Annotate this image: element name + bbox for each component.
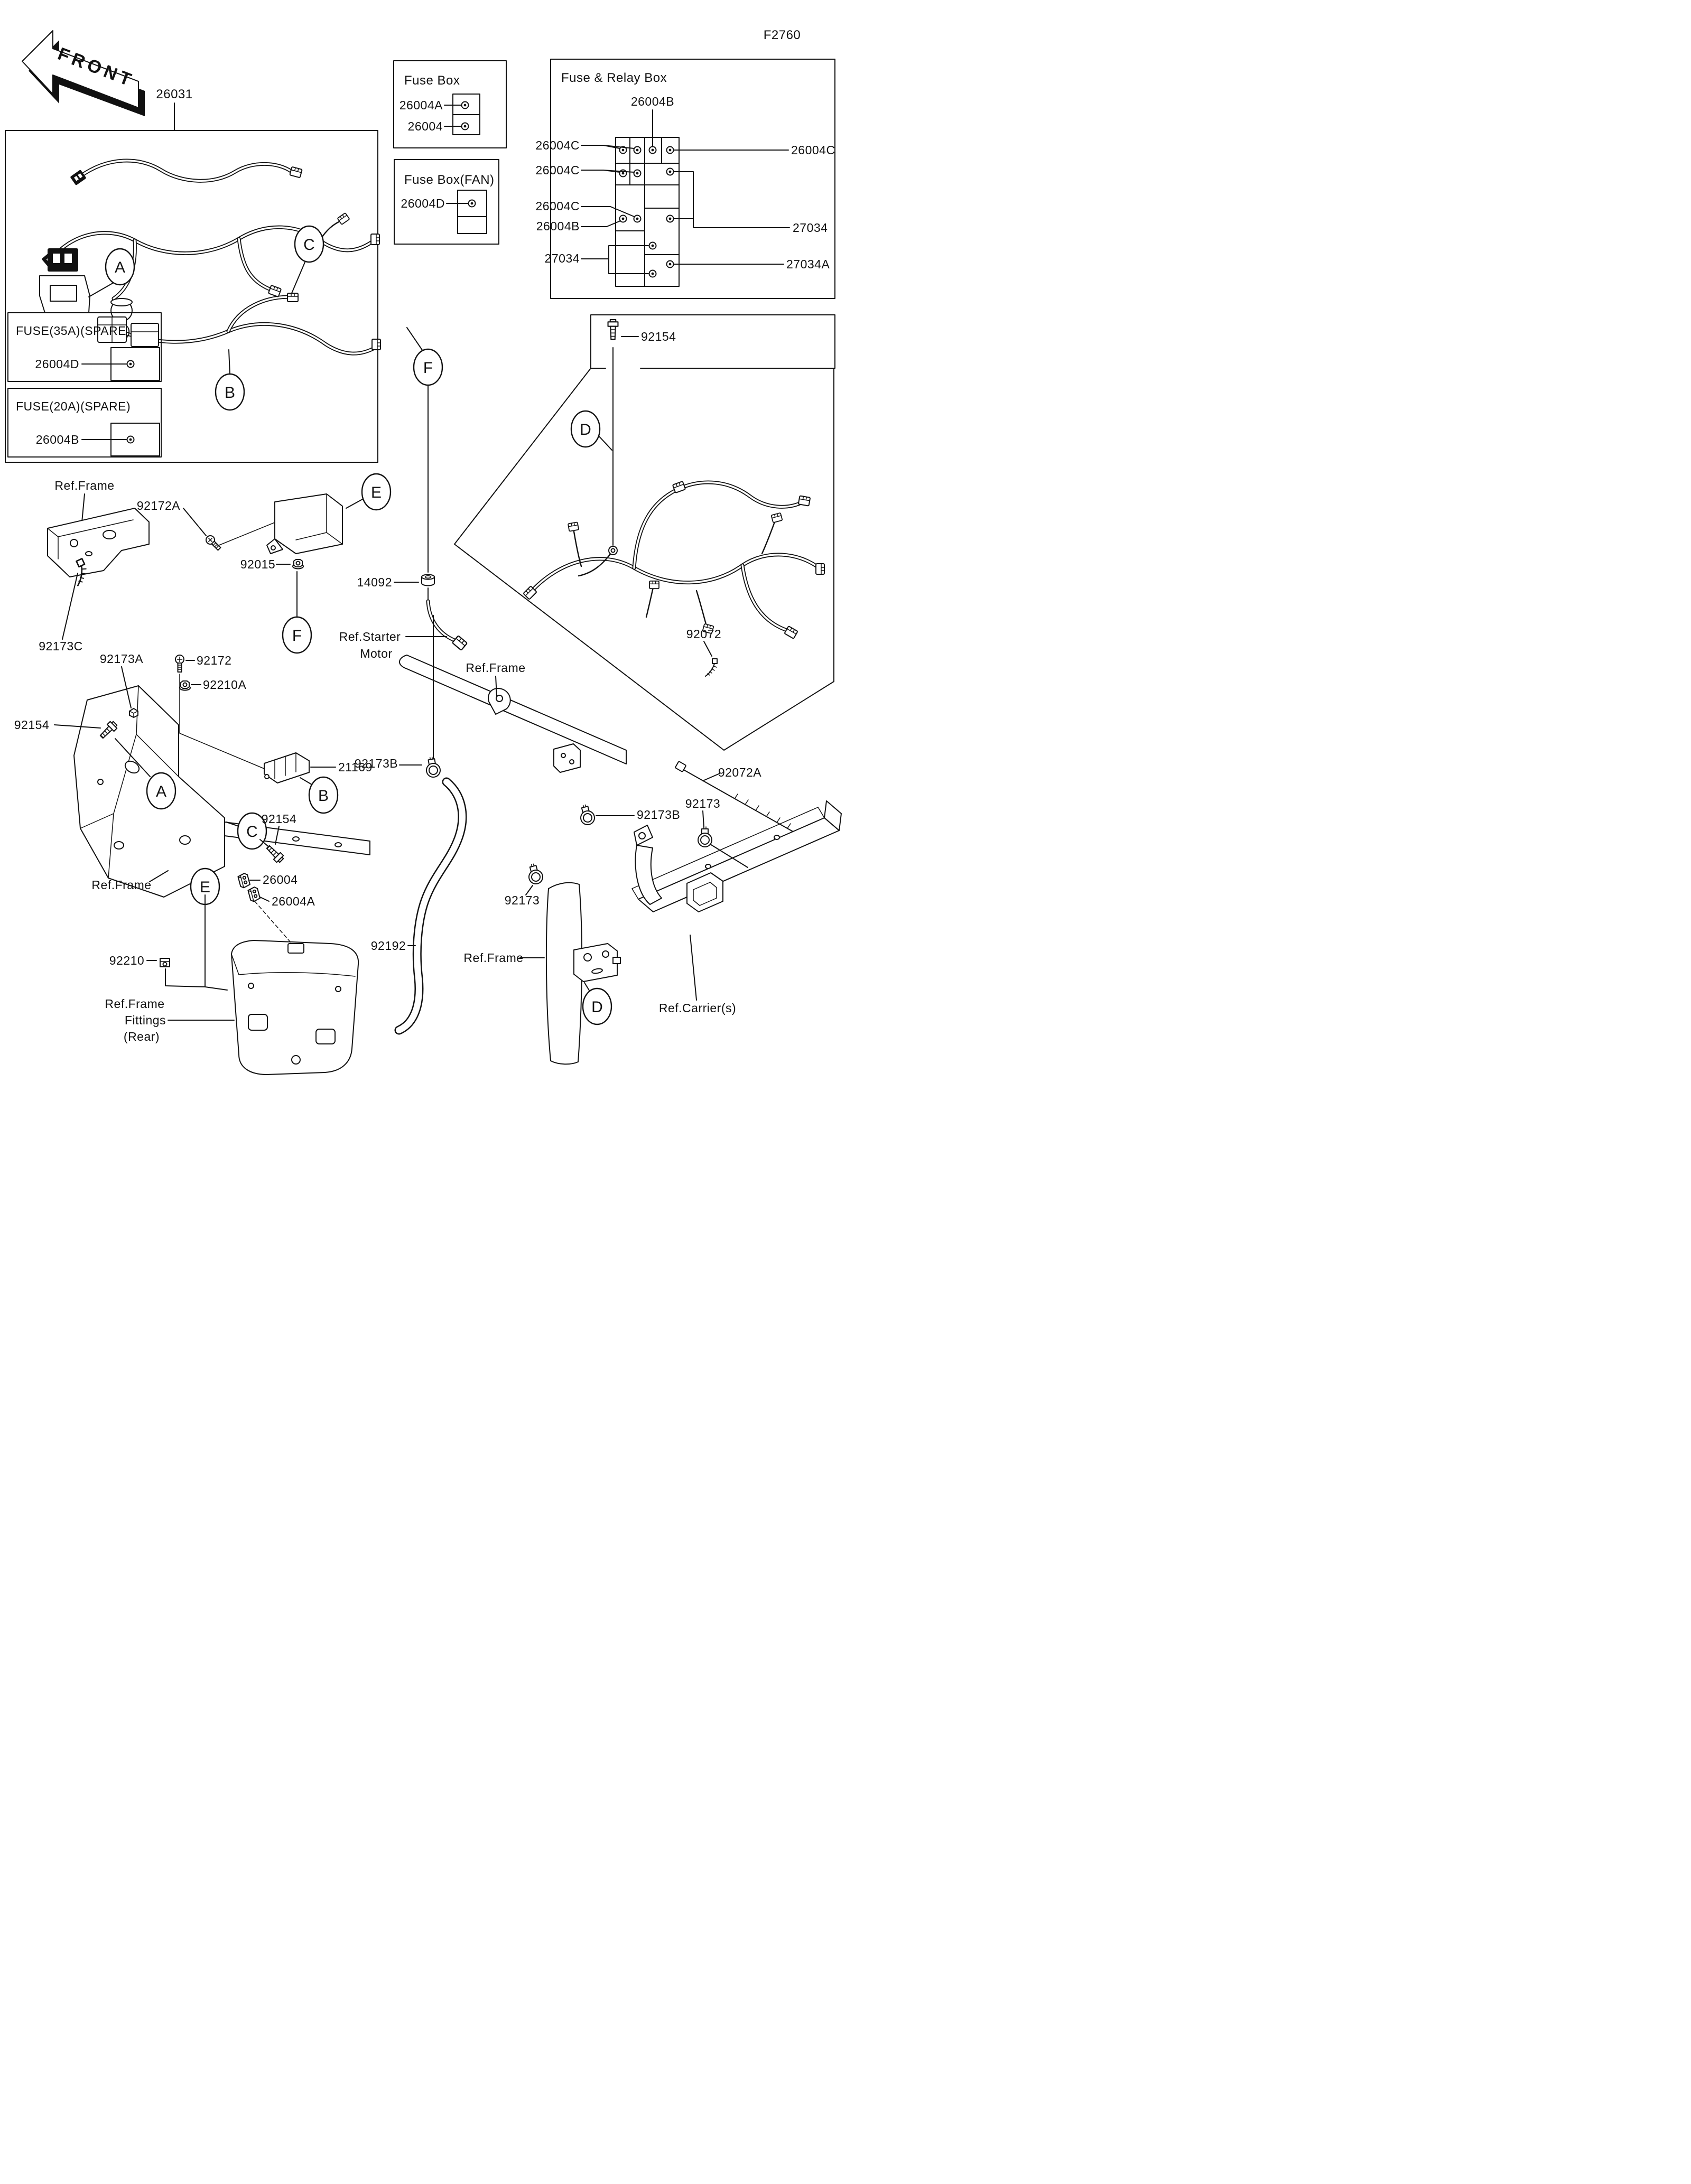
part-label-26004D: 26004D (35, 357, 79, 371)
terminal-dot (634, 216, 641, 222)
rail-hole (705, 864, 711, 869)
starter-branch: F 14092 Ref.Starter Motor (339, 328, 467, 660)
hose-92192: 92192 (371, 782, 462, 1030)
plate-hole (561, 753, 565, 758)
terminal-dot (649, 270, 656, 277)
part-label-92173: 92173 (685, 797, 720, 810)
battery-cover (231, 940, 358, 1075)
leader-line (183, 508, 206, 536)
part-label-26004C: 26004C (535, 163, 580, 177)
relay-part (131, 323, 159, 347)
screw-icon (205, 534, 222, 552)
battery-cover-section: E 92210 26004 26004A Ref.Frame Fittings … (105, 869, 358, 1075)
nut-icon (293, 559, 303, 569)
box-border (591, 315, 835, 368)
callout-letter: A (115, 259, 125, 276)
harness-wire (679, 482, 803, 507)
ref-frame-label: Ref.Frame (463, 951, 523, 965)
clamp-icon (424, 756, 441, 778)
callout-letter: C (246, 823, 258, 841)
leader-line (597, 434, 612, 450)
callout-letter: F (292, 627, 302, 645)
callout-letter: D (580, 421, 591, 438)
junction-hole (265, 774, 269, 779)
callout-letter: B (318, 787, 329, 805)
leader-line (703, 811, 704, 827)
harness-wire (531, 555, 819, 592)
box-title: FUSE(35A)(SPARE) (16, 324, 131, 338)
eyelet-terminal (609, 546, 617, 555)
cover-recess (248, 1014, 267, 1030)
harness-wire (742, 565, 790, 631)
frame-hole (98, 779, 103, 785)
ref-frame-label: Ref.Frame (54, 479, 114, 492)
harness-wire (634, 489, 679, 568)
part-label-26004A: 26004A (399, 98, 443, 112)
terminal-dot (634, 147, 641, 154)
screw-icon (175, 655, 184, 672)
part-label-92072: 92072 (686, 627, 721, 641)
terminal-dot (469, 200, 476, 207)
front-arrow: FRONT (22, 31, 145, 116)
callout-letter: A (156, 783, 166, 800)
part-label-92173C: 92173C (39, 639, 83, 653)
clamp-icon (526, 862, 544, 885)
nut-icon (180, 681, 190, 690)
ref-carrier-label: Ref.Carrier(s) (659, 1001, 736, 1015)
fuse-box-fan: Fuse Box(FAN) 26004D (394, 160, 499, 244)
fuse-icon (248, 886, 261, 902)
bracket-hole (271, 546, 275, 550)
leader-line (89, 283, 114, 297)
callout-b-frame: B (300, 777, 338, 813)
terminal-dot (667, 216, 674, 222)
callout-e-harness: E (346, 474, 391, 510)
harness-wire (428, 601, 454, 640)
terminal-dot (649, 147, 656, 154)
cover-hole (292, 1056, 300, 1064)
part-label-92172: 92172 (197, 654, 231, 667)
harness-wire (239, 239, 271, 290)
bracket-hole (584, 954, 591, 961)
part-label-27034: 27034 (793, 221, 828, 235)
callout-f-harness: F (407, 328, 442, 385)
part-label-92210: 92210 (109, 954, 144, 967)
cover-screw (248, 983, 254, 988)
terminal-dot (649, 242, 656, 249)
ref-fittings-line1: Ref.Frame (105, 997, 164, 1011)
part-label-26004: 26004 (263, 873, 298, 886)
part-label-92154: 92154 (641, 330, 676, 343)
part-label-92173B: 92173B (355, 757, 398, 770)
callout-letter: D (591, 998, 603, 1016)
damper-icon (129, 708, 138, 717)
leader-line (165, 895, 227, 990)
ref-starter-line1: Ref.Starter (339, 630, 401, 643)
part-label-26004: 26004 (408, 119, 443, 133)
connector (372, 339, 380, 350)
box-title: Fuse Box(FAN) (404, 173, 495, 187)
clamp-icon (578, 803, 596, 826)
part-label-26004B: 26004B (36, 433, 79, 446)
diagram-canvas: F2760 FRONT 26031 (0, 0, 845, 1092)
part-label-92173: 92173 (505, 893, 540, 907)
fuse-cells (458, 190, 487, 234)
box-title: Fuse & Relay Box (561, 71, 667, 85)
nut-92015-section: 92015 F (240, 557, 311, 653)
frame-bracket (48, 508, 149, 577)
connector (337, 213, 349, 225)
connector (816, 564, 824, 574)
harness-wire (742, 565, 790, 631)
enclosure-border (454, 368, 834, 750)
terminal-dot (667, 169, 674, 175)
callout-d-frame: D (583, 983, 611, 1024)
harness-wire (531, 555, 819, 592)
cover-recess (316, 1029, 335, 1044)
hose-inner (399, 782, 462, 1030)
terminal-dot (127, 436, 134, 443)
connector-slot (53, 254, 60, 263)
connector-slot (64, 254, 72, 263)
callout-c-harness: C (292, 226, 323, 293)
clip-nut-icon (160, 958, 170, 967)
cover-screw (336, 986, 341, 992)
bracket-hole (103, 530, 116, 539)
part-label-27034A: 27034A (786, 257, 830, 271)
leader-line (703, 773, 720, 781)
callout-letter: B (225, 384, 235, 402)
bolt-icon (265, 844, 285, 864)
connector (673, 481, 685, 493)
terminal-dot (462, 102, 469, 109)
rail-hole (335, 843, 341, 847)
callout-d-harness: D (571, 411, 612, 450)
frame-hole (180, 836, 190, 844)
leader-lines (674, 150, 789, 264)
part-label-27034: 27034 (545, 251, 580, 265)
callout-letter: E (371, 484, 382, 501)
fuse-icon (238, 873, 250, 889)
clamp-icon (698, 827, 712, 847)
connector (287, 293, 298, 302)
callout-letter: E (200, 879, 210, 896)
part-label-26004B: 26004B (631, 95, 674, 108)
callout-letter: F (423, 359, 433, 377)
frame-hole (114, 842, 124, 849)
connector-housing-slot (50, 285, 77, 301)
connector-black (48, 248, 78, 272)
relay-bracket (275, 494, 342, 554)
part-label-92192: 92192 (371, 939, 406, 953)
fuse-relay-box: Fuse & Relay Box 26004B 26004C 26004C 26… (535, 59, 835, 298)
ecu-bracket-section: 92172A E (137, 474, 391, 554)
leader-line (292, 261, 305, 293)
part-label-26004A: 26004A (272, 894, 315, 908)
connector (771, 513, 782, 523)
part-label-92210A: 92210A (203, 678, 246, 692)
terminal-dot (634, 170, 641, 177)
connector (371, 234, 379, 245)
callout-b-harness: B (216, 350, 244, 410)
part-label-26031: 26031 (156, 87, 192, 101)
rail-hole (774, 835, 779, 839)
callout-a-harness: A (89, 249, 134, 297)
frame-post-section: Ref.Frame D (463, 883, 620, 1065)
connector (290, 167, 302, 178)
bolt-icon (608, 320, 618, 340)
harness-wire (679, 482, 803, 507)
leader-line (690, 935, 696, 1000)
spare-fuse-20a-box: FUSE(20A)(SPARE) 26004B (8, 388, 161, 457)
right-harness-drawing (523, 481, 824, 639)
carrier-bracket (635, 845, 662, 904)
part-label-92154: 92154 (14, 718, 49, 732)
bracket-tab (613, 957, 620, 964)
tie-band-icon (705, 659, 717, 676)
fuse-box: Fuse Box 26004A 26004 (394, 61, 506, 148)
ref-fittings-line2: Fittings (125, 1013, 166, 1027)
ref-fittings-line3: (Rear) (124, 1030, 160, 1043)
terminal-dot (667, 261, 674, 268)
connector (568, 522, 579, 531)
cover-latch (288, 944, 304, 953)
leader-line (407, 328, 424, 352)
part-label-14092: 14092 (357, 575, 392, 589)
part-label-26004D: 26004D (401, 197, 445, 210)
post-bracket (574, 944, 617, 982)
leader-line (82, 494, 85, 522)
ref-starter-line2: Motor (360, 647, 392, 660)
rail-plate (554, 744, 580, 772)
callout-letter: C (303, 236, 315, 254)
carrier-rail (638, 818, 839, 912)
callout-a-frame: A (147, 773, 175, 809)
connector (798, 496, 810, 506)
part-label-92154: 92154 (262, 812, 296, 826)
part-label-92015: 92015 (240, 557, 275, 571)
part-label-92173B: 92173B (637, 808, 680, 822)
box-title: Fuse Box (404, 73, 460, 88)
callout-f-frame: F (283, 617, 311, 653)
part-label-26004C: 26004C (535, 138, 580, 152)
bolt-92154-section: 92154 (454, 315, 835, 750)
leader-lines (581, 145, 648, 274)
leader-line (704, 641, 712, 656)
ref-frame-label: Ref.Frame (91, 878, 151, 892)
relay-grid (616, 137, 679, 286)
part-label-92173A: 92173A (100, 652, 143, 666)
bracket-hole (639, 833, 645, 839)
part-label-26004C: 26004C (535, 199, 580, 213)
grommet-icon (422, 575, 434, 586)
hose-outline (399, 782, 462, 1030)
part-label-26004B: 26004B (536, 219, 580, 233)
leader-line (229, 350, 230, 374)
connector (784, 626, 797, 639)
bolt-92154-c: C 92154 (226, 812, 296, 864)
leader-line (62, 573, 78, 639)
rail-hole (293, 837, 299, 841)
connector (268, 285, 281, 297)
terminal-dot (667, 147, 674, 154)
bracket-hole (86, 552, 92, 556)
connector (649, 581, 659, 589)
bracket-hole (602, 951, 609, 957)
page-code: F2760 (764, 28, 801, 42)
plate-hole (570, 760, 574, 764)
ref-frame-upper: Ref.Frame 92173C (39, 479, 149, 653)
capacitor-top (111, 298, 132, 306)
starter-connector (452, 636, 467, 650)
part-label-26004C: 26004C (791, 143, 835, 157)
bracket-hole (70, 539, 78, 547)
terminal-dot (462, 123, 469, 130)
box-title: FUSE(20A)(SPARE) (16, 399, 131, 413)
part-label-92072A: 92072A (718, 766, 761, 779)
ref-frame-label: Ref.Frame (466, 661, 525, 675)
main-harness-section: 26031 (5, 87, 380, 462)
terminal-dot (127, 361, 134, 368)
carrier-section: 92173 92173 92173B Ref.Carrier(s) (505, 797, 841, 1015)
parts-diagram-page: F2760 FRONT 26031 (0, 0, 845, 1092)
part-label-92172A: 92172A (137, 499, 180, 512)
leader-line (260, 897, 269, 901)
